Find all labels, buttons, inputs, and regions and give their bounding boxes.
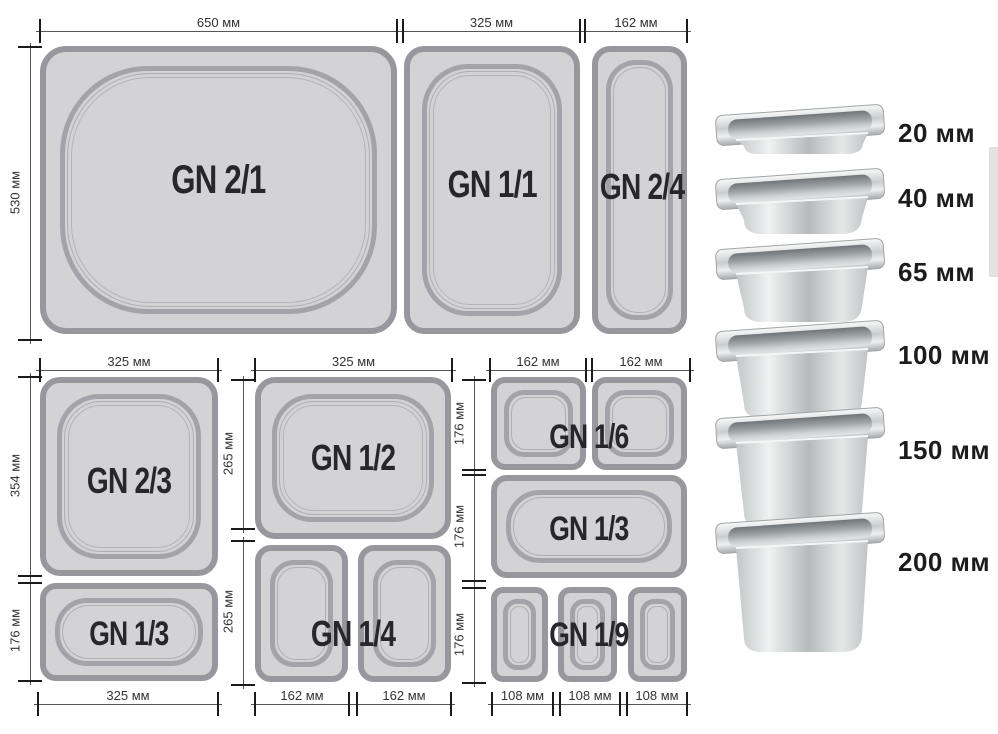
dim-176mm-br-row3-label: 176 мм	[452, 594, 467, 674]
dim-162mm-top-label: 162 мм	[581, 15, 691, 30]
dim-325mm-bl-bottom: 325 мм	[34, 692, 222, 716]
depth-label-40mm: 40 мм	[898, 183, 975, 214]
dim-325mm-bl-bottom-label: 325 мм	[34, 688, 222, 703]
pan-gn-1-1-label: GN 1/1	[404, 164, 580, 207]
pan-gn-1-9-label: GN 1/9	[491, 616, 687, 655]
steel-pan-photo-20mm	[708, 94, 893, 160]
scan-artifact	[989, 147, 998, 277]
dim-325mm-top: 325 мм	[399, 19, 584, 43]
dim-162mm-br-top-left: 162 мм	[486, 358, 590, 382]
dim-176mm-bl-label: 176 мм	[8, 591, 23, 671]
steel-pan-photo-200mm	[708, 502, 893, 658]
dim-354mm: 354 мм	[18, 373, 42, 580]
pan-gn-1-4-label: GN 1/4	[255, 613, 451, 655]
depth-label-100mm: 100 мм	[898, 340, 990, 371]
dim-162mm-mid-bottom-left: 162 мм	[251, 692, 353, 716]
dim-176mm-br-row2: 176 мм	[462, 471, 486, 585]
depth-label-150mm: 150 мм	[898, 435, 990, 466]
dim-176mm-br-row3: 176 мм	[462, 584, 486, 687]
dim-325mm-bl-top-label: 325 мм	[36, 354, 222, 369]
dim-265mm-lower: 265 мм	[231, 537, 255, 689]
dim-108mm-2: 108 мм	[556, 692, 624, 716]
dim-265mm-upper-label: 265 мм	[221, 413, 236, 493]
dim-162mm-br-top-left-label: 162 мм	[486, 354, 590, 369]
pan-gn-1-3-left-label: GN 1/3	[40, 615, 218, 654]
dim-176mm-bl: 176 мм	[18, 579, 42, 685]
dim-530mm: 530 мм	[18, 43, 42, 344]
dim-176mm-br-row1-label: 176 мм	[452, 384, 467, 464]
depth-label-200mm: 200 мм	[898, 547, 990, 578]
dim-325mm-bl-top: 325 мм	[36, 358, 222, 382]
pan-gn-1-6-label: GN 1/6	[491, 418, 687, 457]
dim-162mm-br-top-right-label: 162 мм	[588, 354, 694, 369]
dim-176mm-br-row1: 176 мм	[462, 376, 486, 474]
dim-265mm-upper: 265 мм	[231, 376, 255, 533]
dim-354mm-label: 354 мм	[8, 435, 23, 515]
dim-162mm-mid-bottom-right-label: 162 мм	[353, 688, 455, 703]
pan-gn-2-4-label: GN 2/4	[588, 166, 691, 208]
dim-108mm-3-label: 108 мм	[623, 688, 691, 703]
dim-108mm-1-label: 108 мм	[488, 688, 557, 703]
pan-gn-2-1-label: GN 2/1	[40, 158, 397, 203]
pan-gn-1-3-right-label: GN 1/3	[491, 510, 687, 549]
dim-325mm-mid-top-label: 325 мм	[251, 354, 456, 369]
dim-162mm-mid-bottom-left-label: 162 мм	[251, 688, 353, 703]
depth-label-65mm: 65 мм	[898, 257, 975, 288]
dim-108mm-2-label: 108 мм	[556, 688, 624, 703]
dim-650mm: 650 мм	[36, 19, 401, 43]
dim-650mm-label: 650 мм	[36, 15, 401, 30]
dim-162mm-mid-bottom-right: 162 мм	[353, 692, 455, 716]
depth-label-20mm: 20 мм	[898, 118, 975, 149]
pan-gn-1-2-label: GN 1/2	[255, 437, 451, 479]
dim-265mm-lower-label: 265 мм	[221, 572, 236, 652]
dim-325mm-top-label: 325 мм	[399, 15, 584, 30]
dim-176mm-br-row2-label: 176 мм	[452, 487, 467, 567]
dim-108mm-1: 108 мм	[488, 692, 557, 716]
dim-162mm-top: 162 мм	[581, 19, 691, 43]
dim-162mm-br-top-right: 162 мм	[588, 358, 694, 382]
dim-325mm-mid-top: 325 мм	[251, 358, 456, 382]
pan-gn-2-3-label: GN 2/3	[40, 460, 218, 502]
gastronorm-size-diagram: GN 2/1 GN 1/1 GN 2/4 650 мм 325 мм 162 м…	[0, 0, 998, 734]
dim-530mm-label: 530 мм	[8, 152, 23, 232]
dim-108mm-3: 108 мм	[623, 692, 691, 716]
